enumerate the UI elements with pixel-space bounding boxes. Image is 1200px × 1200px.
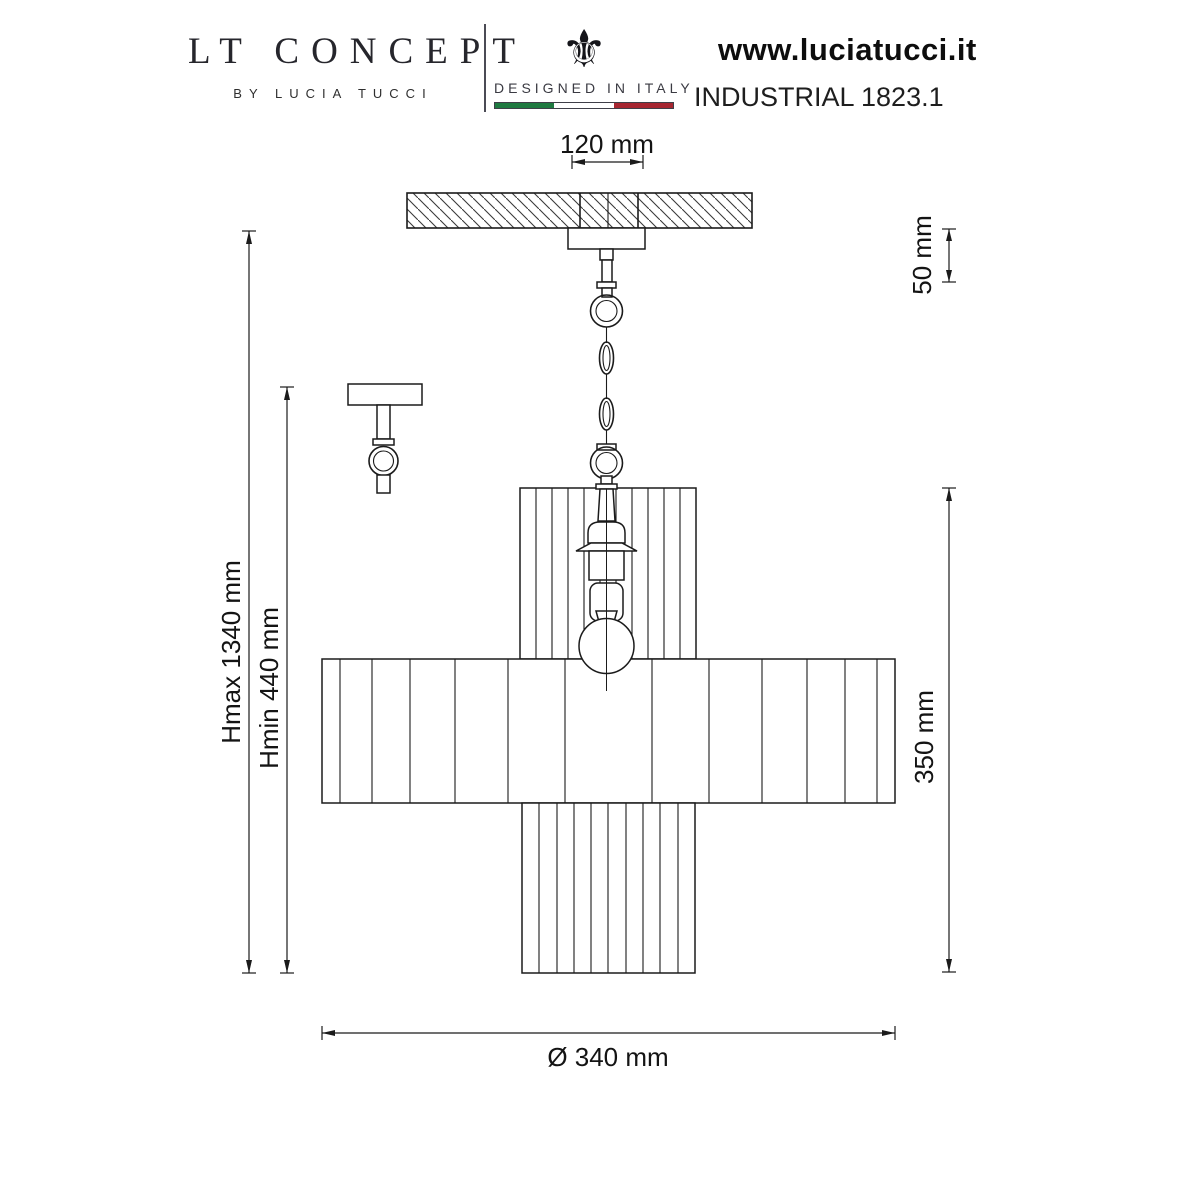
dim-hmax: Hmax 1340 mm (216, 231, 256, 973)
dim-canopy-width: 120 mm (560, 129, 654, 169)
technical-drawing: 120 mm 50 mm Hmax 1340 mm Hmin 440 mm (0, 0, 1200, 1200)
dim-diameter: Ø 340 mm (322, 1026, 895, 1072)
direct-mount-detail (348, 384, 422, 493)
dim-canopy-drop: 50 mm (907, 215, 956, 294)
ceiling-hatch (407, 193, 752, 228)
dim-hmax-label: Hmax 1340 mm (216, 560, 246, 744)
lamp-middle-drum (322, 659, 895, 803)
canopy-and-chain (568, 228, 645, 489)
dim-canopy-drop-label: 50 mm (907, 215, 937, 294)
dim-shade-height-label: 350 mm (909, 690, 939, 784)
product-dimension-sheet: LT CONCEPT BY LUCIA TUCCI ⚜ DESIGNED IN … (0, 0, 1200, 1200)
dim-hmin: Hmin 440 mm (254, 387, 294, 973)
dim-diameter-label: Ø 340 mm (547, 1042, 668, 1072)
dim-canopy-width-label: 120 mm (560, 129, 654, 159)
dim-shade-height: 350 mm (909, 488, 956, 972)
lamp-bottom-drum (522, 803, 695, 973)
dim-hmin-label: Hmin 440 mm (254, 607, 284, 769)
